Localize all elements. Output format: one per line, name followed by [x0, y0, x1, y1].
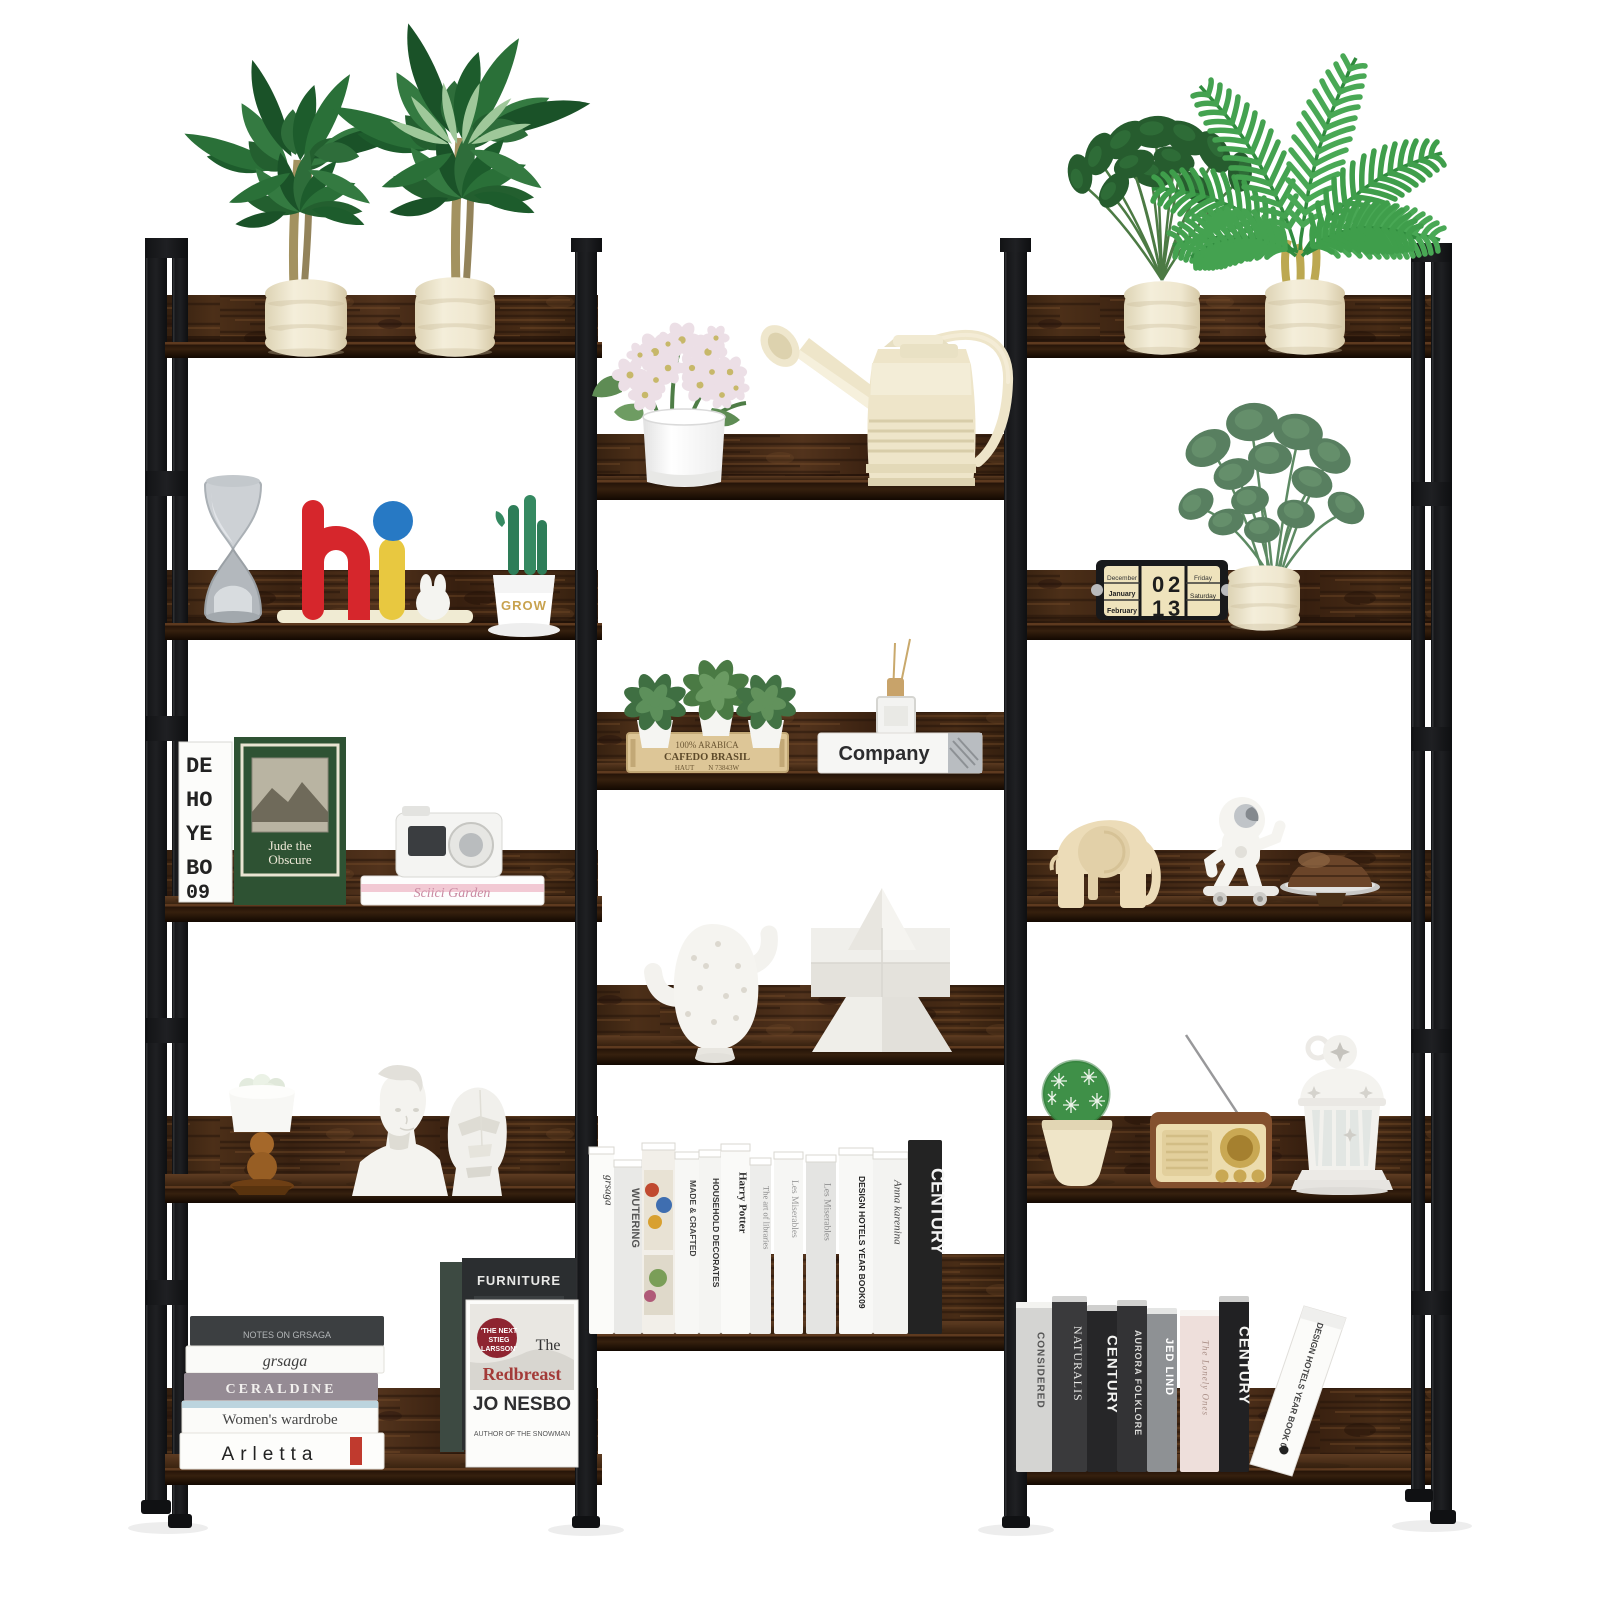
svg-text:FURNITURE: FURNITURE [477, 1273, 561, 1288]
svg-text:DESIGN HOTELS YEAR BOOK09: DESIGN HOTELS YEAR BOOK09 [857, 1176, 867, 1309]
svg-text:Redbreast: Redbreast [483, 1364, 562, 1384]
svg-text:Les Miserables: Les Miserables [789, 1180, 799, 1238]
svg-text:3: 3 [1168, 596, 1180, 621]
svg-text:2: 2 [1168, 572, 1180, 597]
svg-text:HO: HO [186, 788, 212, 813]
svg-text:09: 09 [186, 882, 210, 905]
svg-text:Company: Company [838, 743, 930, 765]
svg-text:CONSIDERED: CONSIDERED [1035, 1332, 1046, 1409]
svg-text:STIEG: STIEG [488, 1337, 510, 1344]
svg-text:JO NESBO: JO NESBO [473, 1394, 571, 1415]
svg-text:CERALDINE: CERALDINE [225, 1382, 336, 1397]
svg-text:Les Miserables: Les Miserables [821, 1183, 831, 1241]
svg-text:DE: DE [186, 754, 212, 779]
svg-text:0: 0 [1152, 572, 1164, 597]
svg-text:NATURALIS: NATURALIS [1071, 1326, 1085, 1402]
svg-text:December: December [1107, 575, 1138, 582]
svg-text:The: The [536, 1337, 561, 1354]
svg-text:February: February [1107, 608, 1137, 615]
svg-text:HOUSEHOLD DECORATES: HOUSEHOLD DECORATES [711, 1178, 721, 1288]
svg-text:Sciici Garden: Sciici Garden [414, 886, 491, 901]
svg-text:JED LIND: JED LIND [1163, 1338, 1175, 1396]
svg-text:Arletta: Arletta [222, 1444, 319, 1465]
svg-text:CENTURY: CENTURY [1235, 1326, 1252, 1405]
svg-text:Obscure: Obscure [268, 852, 312, 867]
svg-text:Jude the: Jude the [269, 838, 312, 853]
svg-text:AURORA FOLKLORE: AURORA FOLKLORE [1133, 1330, 1143, 1436]
svg-text:HAUT N 73843W: HAUT N 73843W [675, 764, 740, 772]
svg-text:grsaga: grsaga [263, 1353, 307, 1370]
svg-text:January: January [1109, 591, 1136, 598]
svg-text:1: 1 [1152, 596, 1164, 621]
svg-text:Saturday: Saturday [1190, 593, 1217, 600]
svg-text:NOTES ON GRSAGA: NOTES ON GRSAGA [243, 1330, 331, 1340]
svg-text:AUTHOR OF THE SNOWMAN: AUTHOR OF THE SNOWMAN [474, 1431, 570, 1438]
svg-text:LARSSON': LARSSON' [481, 1346, 517, 1353]
svg-text:Anna karenina: Anna karenina [891, 1179, 903, 1245]
svg-text:GROW: GROW [501, 598, 547, 613]
svg-text:CENTURY: CENTURY [927, 1168, 947, 1254]
svg-text:MADE & CRAFTED: MADE & CRAFTED [688, 1180, 698, 1257]
svg-text:100% ARABICA: 100% ARABICA [675, 740, 739, 750]
svg-text:BO: BO [186, 856, 212, 881]
svg-text:The art of libraries: The art of libraries [762, 1186, 772, 1249]
svg-text:grsaga: grsaga [602, 1175, 614, 1206]
svg-text:YE: YE [186, 822, 212, 847]
svg-text:'THE NEXT: 'THE NEXT [481, 1328, 518, 1335]
svg-text:CAFEDO BRASIL: CAFEDO BRASIL [664, 752, 750, 763]
svg-text:The Lonely Ones: The Lonely Ones [1201, 1340, 1211, 1416]
svg-text:Harry Potter: Harry Potter [736, 1172, 748, 1233]
svg-text:WUTERING: WUTERING [629, 1188, 641, 1248]
svg-text:Women's wardrobe: Women's wardrobe [222, 1412, 338, 1428]
svg-text:Friday: Friday [1194, 575, 1213, 582]
